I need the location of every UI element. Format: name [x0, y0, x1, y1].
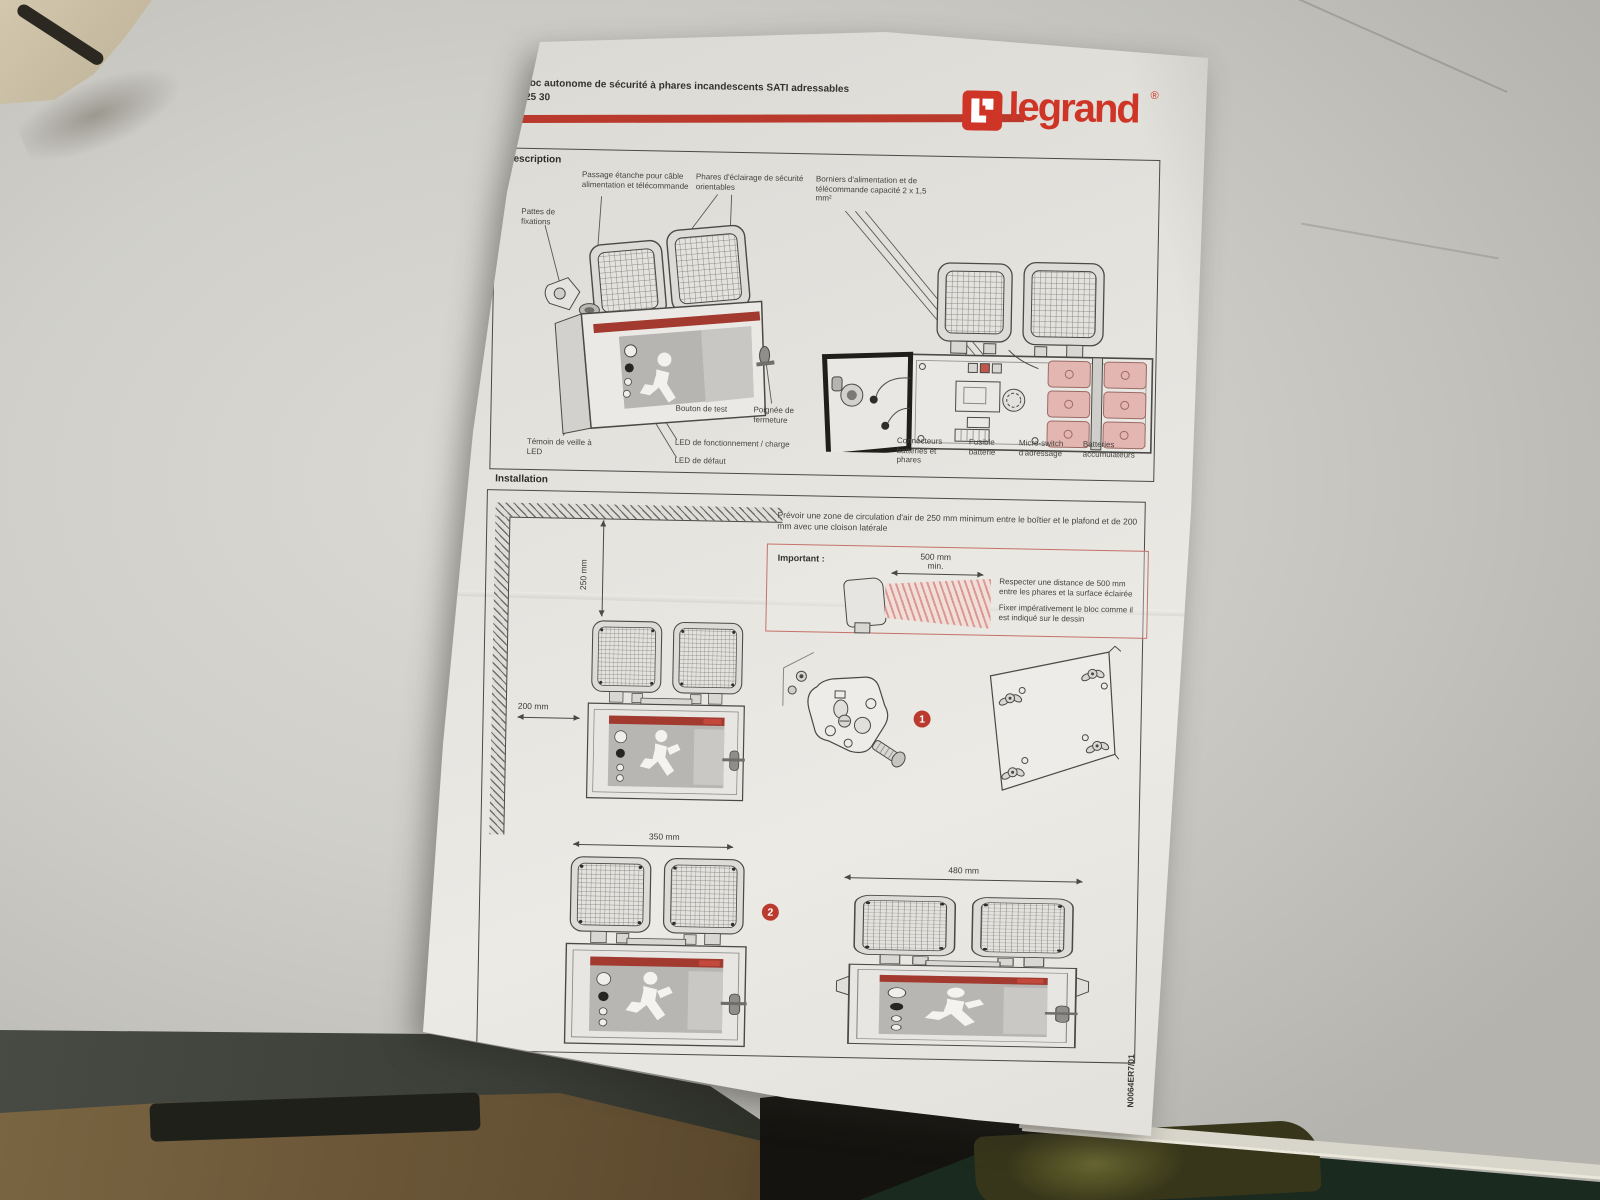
dim-200-label: 200 mm [518, 701, 549, 712]
dim-500-min-label: min. [905, 560, 965, 571]
label-batteries: Batteries accumulateurs [1083, 440, 1155, 461]
header-red-bar [519, 114, 1024, 123]
note-distance: Respecter une distance de 500 mm entre l… [999, 577, 1139, 600]
front-view-480-illustration [833, 885, 1092, 1058]
step-1-marker: 1 [913, 710, 930, 727]
dim-250-label: 250 mm [578, 540, 589, 590]
installation-title: Installation [495, 473, 548, 485]
registered-mark: ® [1151, 90, 1159, 102]
label-bouton-test: Bouton de test [675, 404, 727, 415]
dim-480-label: 480 mm [929, 865, 999, 876]
legrand-logo-mark-icon [962, 90, 1003, 131]
instruction-sheet: Bloc autonome de sécurité à phares incan… [415, 32, 1215, 1152]
desk-scratch [1301, 223, 1498, 259]
side-lamp-icon [843, 577, 887, 628]
doc-reference: 625 30 [519, 92, 550, 104]
dim-500-arrow [891, 573, 983, 576]
device-open-illustration [817, 257, 1159, 458]
installation-box: 250 mm 200 mm Prévoir une zone de circul… [476, 489, 1146, 1064]
side-lamp-foot [854, 622, 870, 633]
label-pattes-fixations: Pattes de fixations [521, 207, 575, 227]
important-label: Important : [778, 553, 825, 564]
legrand-logo-text: legrand [1008, 85, 1139, 132]
step-2-marker: 2 [762, 904, 779, 921]
legrand-logo: legrand ® [962, 82, 1163, 146]
description-box: Description [489, 147, 1160, 482]
photo-scene: Bloc autonome de sécurité à phares incan… [0, 0, 1600, 1200]
installation-intro: Prévoir une zone de circulation d'air de… [777, 510, 1145, 538]
dim-480-arrow [845, 877, 1083, 883]
doc-title: Bloc autonome de sécurité à phares incan… [520, 78, 940, 97]
mounting-bracket-illustration [778, 646, 910, 773]
back-plate-illustration [968, 639, 1121, 794]
label-borniers: Borniers d'alimentation et de télécomman… [815, 174, 941, 205]
wall-clearance-device [582, 616, 751, 805]
label-fusible: Fusible batterie [969, 437, 1015, 457]
label-temoin-veille: Témoin de veille à LED [527, 437, 599, 458]
important-box: Important : 500 mm min. Respecter une di… [765, 544, 1149, 639]
label-poignee-fermeture: Poignée de fermeture [753, 405, 815, 425]
front-view-350-illustration [559, 852, 753, 1052]
ceiling-hatch-band [495, 502, 782, 523]
wall-hatch-band [489, 516, 510, 834]
dim-350-arrow [573, 844, 733, 848]
light-beam-illustration [884, 577, 991, 629]
label-micro-switch: Micro-switch d'adressage [1019, 438, 1083, 458]
page-content: Bloc autonome de sécurité à phares incan… [475, 69, 1167, 1142]
dim-200-arrow [518, 717, 580, 719]
paper-surface: Bloc autonome de sécurité à phares incan… [415, 32, 1215, 1152]
note-fixing: Fixer impérativement le bloc comme il es… [998, 603, 1138, 626]
label-passage-etanche: Passage étanche pour câble alimentation … [582, 170, 694, 191]
label-phares: Phares d'éclairage de sécurité orientabl… [696, 172, 806, 193]
desk-scratch [1233, 0, 1508, 93]
label-led-defaut: LED de défaut [674, 456, 764, 467]
dim-250-arrow [602, 520, 605, 616]
dim-350-label: 350 mm [629, 831, 699, 842]
label-connecteurs: Connecteurs batteries et phares [896, 436, 961, 466]
device-3d-illustration [531, 221, 790, 441]
doc-ref-vertical: N0064ER7/01 [1125, 998, 1137, 1108]
